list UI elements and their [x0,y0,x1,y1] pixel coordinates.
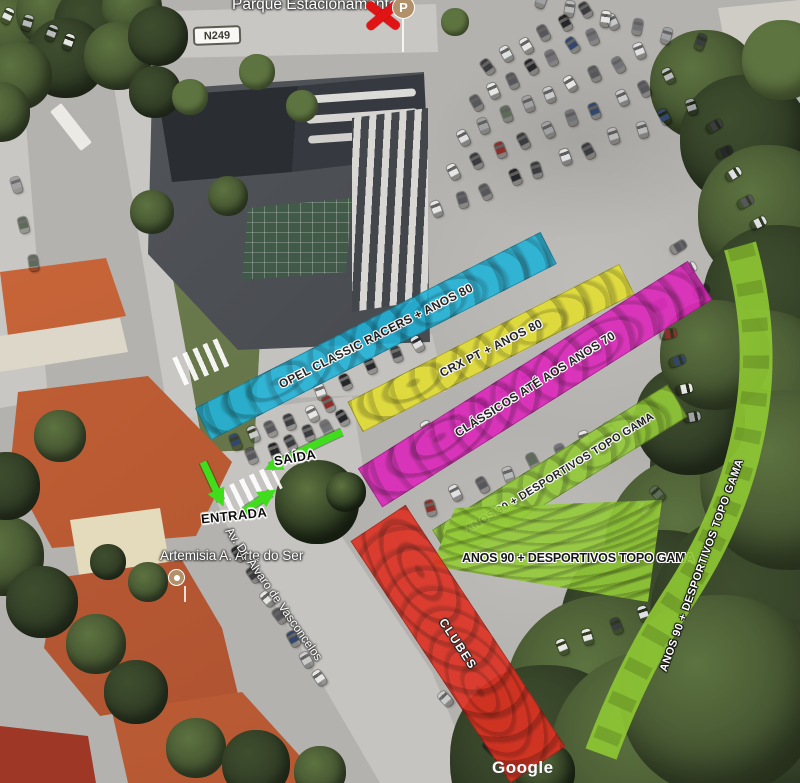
parked-car [508,168,523,186]
parked-car [581,628,594,646]
parked-car [541,121,556,139]
parked-car [499,44,515,62]
parked-car [475,476,491,494]
parked-car [580,142,595,160]
parked-car [9,176,23,194]
parked-car [565,109,579,127]
parked-car [476,117,490,135]
parked-car [660,27,673,45]
parked-car [469,152,484,170]
parked-car [423,499,436,517]
parked-car [478,183,493,201]
parked-car [637,80,652,98]
parked-car [62,33,76,51]
parked-car [725,165,743,181]
parked-car [429,200,443,218]
parked-car [649,485,666,503]
parked-car [486,82,501,100]
parked-car [246,425,260,443]
parked-car [749,215,767,230]
parked-car [564,0,575,17]
parked-car [611,56,627,74]
parked-car [446,163,461,181]
parked-car [456,128,471,146]
poi-pin-dot [174,575,180,581]
parked-car [468,94,484,112]
road-badge-n249: N249 [193,25,242,46]
aerial-map-canvas[interactable]: OPEL CLASSIC RACERS + ANOS 80 CRX PT + A… [0,0,800,783]
parked-car [675,383,693,395]
parked-car [716,144,734,159]
parked-car [694,33,708,51]
parked-car [228,433,242,451]
parked-car [17,216,30,234]
parked-car [607,127,621,145]
poi-artemisia-label: Artemisia A. Arte do Ser [160,548,303,563]
parked-car [558,148,572,166]
poi-pin-stem [184,586,186,602]
google-watermark[interactable]: Google [492,758,554,778]
parked-car [448,484,463,502]
parked-car [519,37,535,55]
parked-car [565,36,581,54]
parked-car [587,102,601,120]
parked-car [28,254,39,271]
parked-car [479,58,496,76]
parked-car [542,86,556,104]
parking-marker-stem [402,18,404,52]
road-badge-text: N249 [204,29,231,42]
parked-car [563,75,579,93]
parked-car [321,395,336,413]
parked-car [669,354,687,368]
parked-car [661,592,674,610]
parked-car [521,95,535,113]
parked-car [586,28,601,46]
parked-car [661,66,676,84]
parked-car [245,447,260,465]
poi-pin-icon[interactable] [168,569,185,586]
parked-car [263,420,278,438]
parked-car [534,0,548,9]
parked-car [632,18,644,35]
parking-marker-letter: P [399,0,408,15]
parked-car [669,239,687,255]
parked-car [302,424,316,442]
parked-car [523,58,539,76]
parked-car [305,405,320,423]
parked-car [610,617,624,635]
parked-car [338,373,353,391]
parked-car [633,42,647,60]
parked-car [505,72,520,90]
parked-car [587,65,602,83]
parked-car [456,191,469,209]
parked-car [637,605,651,623]
parked-car [544,49,559,67]
parked-car [530,161,543,179]
zone-anos90-block-label: ANOS 90 + DESPORTIVOS TOPO GAMA [462,551,694,565]
parked-car [0,7,15,25]
parked-car [737,195,755,211]
zone-anos90-block-label-wrap: ANOS 90 + DESPORTIVOS TOPO GAMA [462,549,687,567]
parked-car [636,121,649,139]
parked-car [319,419,334,437]
parked-car [500,105,514,123]
parked-car [556,638,571,656]
parked-car [685,98,698,116]
parked-car [578,1,594,19]
parked-car [493,141,507,159]
parked-car [282,413,296,431]
parked-car [656,108,671,126]
parked-car [334,409,350,427]
parked-car [615,88,630,106]
parked-car [536,24,551,42]
parked-car [705,118,723,134]
parked-car [21,15,34,33]
parked-car [516,132,531,150]
zone-clubes-label: CLUBES [436,616,480,672]
parked-car [44,24,58,42]
